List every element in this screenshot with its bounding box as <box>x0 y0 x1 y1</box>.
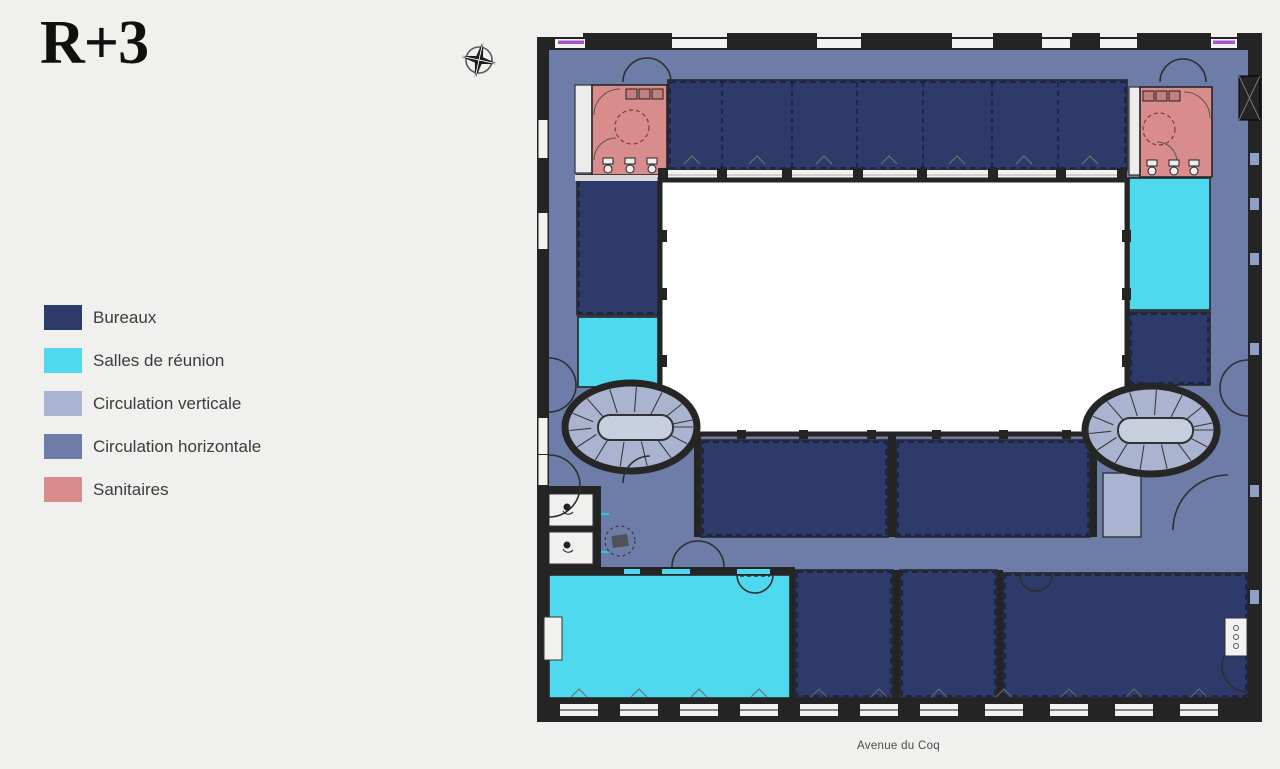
closet-strip <box>575 85 592 173</box>
legend-item-sanitaires: Sanitaires <box>44 477 261 502</box>
legend-swatch-salles-de-reunion <box>44 348 82 373</box>
wall-sep-3 <box>997 570 1003 698</box>
room-bureaux-mid-right <box>896 440 1090 537</box>
duct-box <box>1239 76 1260 120</box>
elevator-cab <box>549 532 593 564</box>
courtyard-void <box>660 180 1127 434</box>
legend-item-bureaux: Bureaux <box>44 305 261 330</box>
room-bureaux-mid-left <box>701 440 888 537</box>
accent-mark-right <box>1213 41 1235 45</box>
stair-right <box>1085 386 1217 474</box>
wall-mid-center <box>888 434 896 537</box>
room-reunion-right <box>1129 178 1210 310</box>
stair-vestibule <box>1103 473 1141 537</box>
legend: Bureaux Salles de réunion Circulation ve… <box>44 305 261 502</box>
stair-core <box>598 415 673 440</box>
urinal <box>1156 91 1167 101</box>
wall-sep-2 <box>893 570 900 698</box>
legend-label-salles-de-reunion: Salles de réunion <box>93 351 224 371</box>
closet-strip <box>1129 87 1140 175</box>
legend-label-bureaux: Bureaux <box>93 308 156 328</box>
urinal <box>1143 91 1154 101</box>
room-bureaux-right <box>1129 312 1210 385</box>
urinal <box>626 89 637 99</box>
legend-item-circulation-verticale: Circulation verticale <box>44 391 261 416</box>
room-reunion-left <box>578 317 658 387</box>
room-bureaux-bottom-3 <box>1003 573 1248 698</box>
legend-item-salles-de-reunion: Salles de réunion <box>44 348 261 373</box>
glazing-slot <box>662 569 690 574</box>
sill-band <box>575 175 667 181</box>
room-bureaux-bottom-2 <box>900 570 997 698</box>
accent-mark-left <box>558 41 584 45</box>
wall-mid-left <box>694 434 701 537</box>
legend-label-circulation-verticale: Circulation verticale <box>93 394 241 414</box>
bay-niche-left <box>544 617 562 660</box>
sanitaires-right <box>1129 87 1212 177</box>
street-label: Avenue du Coq <box>537 740 1260 752</box>
glazing-slot <box>624 569 640 574</box>
legend-swatch-circulation-verticale <box>44 391 82 416</box>
room-bureaux-left <box>577 175 660 315</box>
urinal <box>1169 91 1180 101</box>
legend-swatch-circulation-horizontale <box>44 434 82 459</box>
legend-label-sanitaires: Sanitaires <box>93 480 169 500</box>
legend-label-circulation-horizontale: Circulation horizontale <box>93 437 261 457</box>
legend-swatch-sanitaires <box>44 477 82 502</box>
toilets <box>1147 160 1199 175</box>
legend-swatch-bureaux <box>44 305 82 330</box>
urinal <box>652 89 663 99</box>
compass-rose-icon <box>457 38 501 82</box>
stair-left <box>565 383 697 471</box>
floor-title: R+3 <box>40 8 148 79</box>
elevators <box>541 486 609 570</box>
floor-plan <box>537 30 1262 725</box>
room-bureaux-bottom-1 <box>795 570 893 698</box>
urinal <box>639 89 650 99</box>
elevator-cab <box>549 494 593 526</box>
glazing-slot <box>737 569 770 574</box>
radiator-niche <box>1225 618 1247 656</box>
sanitaires-left <box>575 85 667 181</box>
legend-item-circulation-horizontale: Circulation horizontale <box>44 434 261 459</box>
courtyard <box>658 156 1131 439</box>
